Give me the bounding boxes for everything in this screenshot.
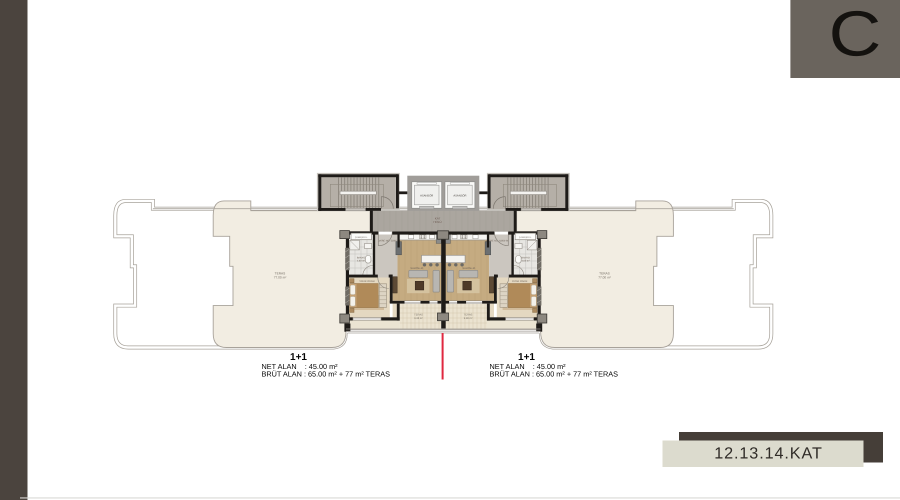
svg-text:BRÜT ALAN : 65.00 m² + 77 m² T: BRÜT ALAN : 65.00 m² + 77 m² TERAS xyxy=(490,369,619,378)
svg-text:4.60 m²: 4.60 m² xyxy=(357,260,365,263)
svg-text:ASANSÖR: ASANSÖR xyxy=(420,193,433,197)
svg-text:77.00 m²: 77.00 m² xyxy=(598,276,611,280)
svg-text:ÇAMAŞIR D.: ÇAMAŞIR D. xyxy=(355,236,368,239)
svg-text:C: C xyxy=(829,0,882,70)
svg-text:ASANSÖR: ASANSÖR xyxy=(453,193,466,197)
svg-text:9.38 m²: 9.38 m² xyxy=(414,317,423,320)
svg-text:77.00 m²: 77.00 m² xyxy=(274,276,287,280)
svg-text:4.60 m²: 4.60 m² xyxy=(522,260,530,263)
svg-text:BRÜT ALAN : 65.00 m² + 77 m² T: BRÜT ALAN : 65.00 m² + 77 m² TERAS xyxy=(262,369,391,378)
svg-text:12.13.14.KAT: 12.13.14.KAT xyxy=(714,445,823,463)
svg-text:HOLÜ: HOLÜ xyxy=(433,220,441,224)
svg-text:ÇAMAŞIR D.: ÇAMAŞIR D. xyxy=(519,236,532,239)
svg-text:9.38 m²: 9.38 m² xyxy=(464,317,473,320)
svg-text:YATAK ODASI: YATAK ODASI xyxy=(359,280,375,283)
svg-text:YATAK ODASI: YATAK ODASI xyxy=(512,280,528,283)
